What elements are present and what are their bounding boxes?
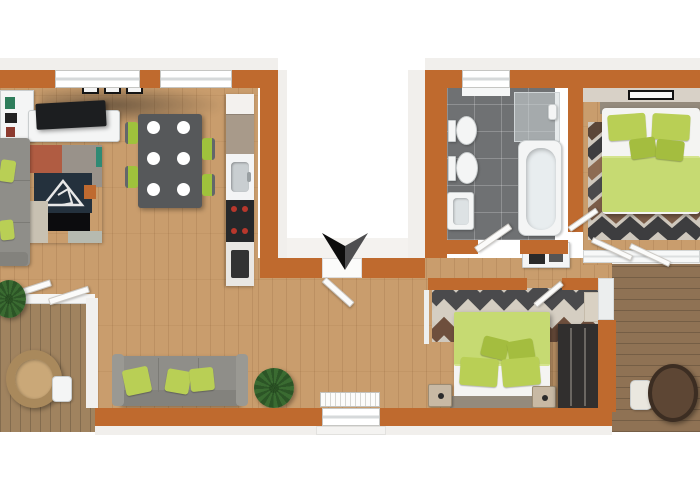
nightstand-item	[542, 395, 548, 401]
window-sill-south	[316, 426, 386, 435]
floor-plan-canvas	[0, 0, 700, 500]
window-sill-bathroom	[462, 88, 510, 96]
nightstand-right	[532, 386, 556, 408]
bed-pillow	[501, 356, 541, 387]
wall-face-top-left	[0, 58, 278, 70]
sofa	[112, 354, 248, 408]
kitchen-faucet	[247, 172, 251, 182]
bed-pillow-small	[629, 136, 658, 159]
bidet-bowl	[456, 116, 477, 145]
wardrobe	[558, 324, 598, 410]
nightstand-item	[438, 393, 444, 399]
glass-frame-bedroom-bottom-east	[598, 278, 614, 320]
wardrobe-door-line	[584, 328, 586, 406]
nightstand-left	[428, 384, 452, 407]
corner-sofa-armrest	[0, 252, 28, 266]
wall-bedroom-bottom-north-a	[428, 278, 527, 290]
wall-face-notch-left	[278, 70, 287, 278]
window-south	[322, 408, 380, 426]
rug-patch-rust	[26, 145, 62, 173]
sofa-armrest-right	[236, 354, 248, 406]
radiator	[320, 392, 380, 407]
bed-pillow-small	[655, 139, 685, 162]
bidet	[448, 115, 478, 147]
bathtub-basin	[526, 148, 556, 230]
dining-chair	[125, 166, 138, 188]
dining-chair	[125, 122, 138, 144]
rug-patch-black	[48, 213, 90, 231]
washbasin-bowl	[453, 198, 469, 225]
patch-area-rug	[26, 145, 102, 243]
dining-plate	[177, 121, 190, 134]
dining-chair	[202, 138, 215, 160]
shelf-book-dark	[5, 113, 17, 123]
oven	[226, 242, 254, 286]
shelf-book-red	[6, 127, 15, 137]
bed-pillow	[607, 113, 647, 142]
kitchen-sink-unit	[226, 154, 254, 200]
dining-plate	[147, 121, 160, 134]
bathtub	[518, 140, 562, 236]
balcony-round-table	[648, 364, 698, 422]
bed-pillow	[651, 113, 690, 141]
sofa-pillow-2	[164, 368, 192, 395]
shelf-book-green	[5, 97, 15, 109]
toilet	[448, 151, 479, 185]
wall-bedroom-bottom-east	[598, 320, 616, 412]
shower-mixer	[548, 104, 557, 120]
wall-bathroom-bedroom-divider	[568, 88, 583, 232]
rug-patch-orange	[84, 185, 96, 199]
wall-face-top-right	[425, 58, 700, 70]
kitchen-cabinet	[226, 114, 254, 154]
window-left-wing-2	[160, 70, 232, 88]
door-frame-strip	[424, 290, 429, 344]
stove	[226, 200, 254, 242]
sofa-pillow-1	[122, 366, 153, 397]
wall-face-notch-right	[408, 70, 425, 258]
wall-left-wing-east	[260, 70, 278, 278]
bed-bedroom-top	[602, 108, 700, 214]
rug-patch-light	[68, 231, 102, 243]
stove-burner	[231, 228, 237, 234]
stove-burner	[242, 228, 248, 234]
wardrobe-door-line	[570, 328, 572, 406]
toilet-tank	[448, 156, 456, 181]
bed-pillow	[459, 357, 499, 388]
dining-plate	[177, 152, 190, 165]
bidet-tank	[448, 120, 456, 142]
toilet-bowl	[456, 152, 478, 184]
wall-bathroom-south-b	[520, 240, 568, 254]
oven-door	[231, 250, 249, 278]
wall-bathroom-west	[425, 70, 447, 258]
corner-sofa-pillow-2	[0, 219, 15, 240]
balcony-side-table	[52, 376, 72, 402]
dining-plate	[147, 183, 160, 196]
stove-burner	[242, 206, 248, 212]
dining-plate	[177, 183, 190, 196]
dining-table	[138, 114, 202, 208]
dining-chair	[202, 174, 215, 196]
kitchen-counter	[226, 94, 254, 286]
sofa-armrest-left	[112, 354, 124, 406]
potted-plant	[254, 368, 294, 408]
balcony-left-pillar	[86, 298, 98, 408]
sofa-cushion-line	[158, 358, 159, 392]
picture-frame-bedroom-top	[628, 90, 674, 100]
window-bathroom	[462, 70, 510, 88]
stove-burner	[231, 206, 237, 212]
sofa-pillow-3	[189, 367, 215, 392]
dining-plate	[147, 152, 160, 165]
window-left-wing-1	[55, 70, 140, 88]
entrance-arrow-marker	[320, 230, 370, 272]
kitchen-upper-cabinet	[226, 94, 254, 114]
corner-sofa	[0, 138, 30, 266]
tv	[35, 100, 106, 130]
duvet-bedroom-top	[602, 156, 700, 212]
rug-patch-teal	[96, 147, 102, 167]
washbasin	[447, 192, 474, 230]
